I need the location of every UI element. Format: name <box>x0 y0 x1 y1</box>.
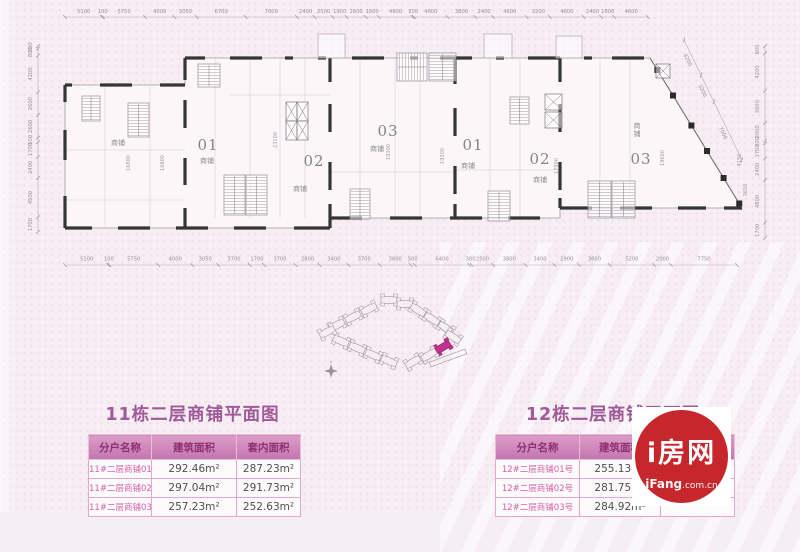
ifang-logo-domain: iFang.com.cn <box>635 477 728 491</box>
shop-label: 商铺 <box>461 161 475 170</box>
elevator-icon <box>286 102 297 121</box>
dimension-label: 1700 <box>28 143 34 156</box>
dimension-label: 2600 <box>350 9 363 15</box>
stairs-icon <box>397 53 427 81</box>
stairs-icon <box>429 53 456 81</box>
dimension-label: 3400 <box>533 257 546 263</box>
elevator-icon <box>297 102 308 121</box>
dimension-label: 3700 <box>227 257 240 263</box>
area-value-cell: 252.63m² <box>237 498 301 517</box>
dimension-label: 7000 <box>265 9 278 15</box>
page-title: 11栋二层商铺平面图 <box>88 401 297 426</box>
ifang-logo-text: i房网 <box>635 431 728 470</box>
site-building <box>347 339 367 357</box>
unit-number-label: 01 <box>462 136 483 154</box>
dimension-label: 2000 <box>656 257 669 263</box>
stairs-icon <box>128 103 149 137</box>
stairs-icon <box>488 191 510 221</box>
dimension-label: 5200 <box>625 257 638 263</box>
dimension-label: 3700 <box>273 257 286 263</box>
dimension-label: 4600 <box>625 9 638 15</box>
area-value-cell: 287.23m² <box>237 460 301 479</box>
unit-number-label: 01 <box>197 136 218 154</box>
area-value-cell: 297.04m² <box>152 479 237 498</box>
dimension-label: 300 <box>466 257 476 263</box>
dimension-label: 2400 <box>478 9 491 15</box>
dimension-label: 4600 <box>424 9 437 15</box>
dimension-label: 200 <box>408 9 418 15</box>
shop-label: 铺 <box>634 129 641 138</box>
dimension-label: 1800 <box>601 9 614 15</box>
dimension-label: 6400 <box>435 257 448 263</box>
interior-dimension-label: 17900 <box>554 158 560 174</box>
left-dimension-line: 3008004200260026005001700240045001700 <box>28 42 40 233</box>
unit-name-cell: 11#二层商铺03号 <box>89 498 152 517</box>
area-table-building-11: 分户名称建筑面积套内面积11#二层商铺01号292.46m²287.23m²11… <box>88 434 301 517</box>
dimension-label: 4800 <box>755 195 761 208</box>
dimension-label: 4500 <box>28 191 34 204</box>
page: 5100100575040003050670070002400250019002… <box>0 0 800 512</box>
dimension-label: 5750 <box>127 257 140 263</box>
stairs-icon <box>612 181 635 218</box>
dimension-label: 4000 <box>169 257 182 263</box>
compass-icon <box>324 361 338 378</box>
dimension-label: 1700 <box>250 257 263 263</box>
roof-outline <box>556 36 582 58</box>
dimension-label: 2400 <box>28 161 34 174</box>
right-dimension-line: 8004200360020003001700240048001700 <box>755 44 767 240</box>
dimension-label: 3600 <box>755 100 761 113</box>
unit-name-cell: 12#二层商铺02号 <box>496 479 580 498</box>
dimension-label: 2400 <box>755 163 761 176</box>
table-row: 11#二层商铺03号257.23m²252.63m² <box>89 498 301 517</box>
dimension-label: 5100 <box>77 9 90 15</box>
interior-dimension-label: 19300 <box>386 144 392 160</box>
unit-name-cell: 12#二层商铺03号 <box>496 498 580 517</box>
table-header-cell: 套内面积 <box>237 435 301 460</box>
dimension-label: 4200 <box>755 65 761 78</box>
stairs-icon <box>350 189 370 219</box>
interior-dimension-label: 16800 <box>126 155 132 171</box>
table-header-cell: 分户名称 <box>89 435 152 460</box>
dimension-label: 3800 <box>503 257 516 263</box>
dimension-label: 3400 <box>327 257 340 263</box>
dimension-label: 3600 <box>588 257 601 263</box>
shop-label: 商铺 <box>293 184 307 193</box>
dimension-label: 4600 <box>389 9 402 15</box>
elevator-icon <box>286 121 297 140</box>
elevator-icon <box>656 64 670 78</box>
dimension-label: 2500 <box>476 257 489 263</box>
bottom-dimension-line: 5100100575040003050370017003700280034003… <box>63 257 739 267</box>
elevator-icon <box>545 94 562 110</box>
table-row: 11#二层商铺02号297.04m²291.73m² <box>89 479 301 498</box>
interior-dimension-label: 4150 <box>737 154 743 167</box>
dimension-label: 5100 <box>80 257 93 263</box>
area-value-cell: 291.73m² <box>237 479 301 498</box>
dimension-label: 4200 <box>28 67 34 80</box>
dimension-label: 4600 <box>503 9 516 15</box>
interior-dimension-label: 23100 <box>273 132 279 148</box>
stairs-icon <box>82 96 100 121</box>
roof-outline <box>484 34 512 58</box>
siteplan-thumbnail <box>305 285 475 395</box>
dimension-label: 2800 <box>301 257 314 263</box>
table-row: 11#二层商铺01号292.46m²287.23m² <box>89 460 301 479</box>
stairs-icon <box>510 97 529 124</box>
dimension-label: 2500 <box>317 9 330 15</box>
dimension-label: 100 <box>98 9 108 15</box>
unit-number-label: 02 <box>529 150 550 168</box>
ifang-logo-watermark: i房网 iFang.com.cn <box>632 407 731 506</box>
dimension-label: 500 <box>408 257 418 263</box>
unit-name-cell: 12#二层商铺01号 <box>496 460 580 479</box>
interior-dimension-label: 16800 <box>160 155 166 171</box>
interior-dimension-label: 3650 <box>743 184 749 197</box>
unit-number-label: 02 <box>303 152 324 170</box>
dimension-label: 100 <box>104 257 114 263</box>
area-value-cell: 292.46m² <box>152 460 237 479</box>
dimension-label: 4000 <box>153 9 166 15</box>
dimension-label: 2400 <box>299 9 312 15</box>
unit-number-label: 03 <box>377 122 398 140</box>
dimension-label: 1800 <box>366 9 379 15</box>
elevator-icon <box>297 121 308 140</box>
shop-label: 商铺 <box>533 175 547 184</box>
dimension-label: 2600 <box>28 97 34 110</box>
unit-name-cell: 11#二层商铺01号 <box>89 460 152 479</box>
dimension-label: 5750 <box>117 9 130 15</box>
interior-dimension-label: 19600 <box>660 150 666 166</box>
site-building <box>359 300 380 318</box>
interior-dimension-label: 19300 <box>440 148 446 164</box>
dimension-label: 1700 <box>755 224 761 237</box>
shop-label: 商铺 <box>111 138 125 147</box>
dimension-label: 800 <box>755 45 761 55</box>
shop-label: 商 <box>634 121 641 130</box>
dimension-label: 4600 <box>560 9 573 15</box>
dimension-label: 1700 <box>755 144 761 157</box>
unit-name-cell: 11#二层商铺02号 <box>89 479 152 498</box>
shop-label: 商铺 <box>370 144 384 153</box>
dimension-label: 2900 <box>560 257 573 263</box>
stairs-icon <box>588 181 611 218</box>
ifang-logo-circle: i房网 iFang.com.cn <box>635 410 728 503</box>
dimension-label: 3050 <box>199 257 212 263</box>
site-building <box>381 294 398 306</box>
building-11-section: 11栋二层商铺平面图 分户名称建筑面积套内面积11#二层商铺01号292.46m… <box>88 401 297 517</box>
table-header-cell: 建筑面积 <box>152 435 237 460</box>
stairs-icon <box>246 175 267 215</box>
table-header-cell: 分户名称 <box>496 435 580 460</box>
dimension-label: 6700 <box>215 9 228 15</box>
floorplan-drawing: 5100100575040003050670070002400250019002… <box>0 0 800 285</box>
unit-number-label: 03 <box>630 150 651 168</box>
area-value-cell: 257.23m² <box>152 498 237 517</box>
shop-label: 商铺 <box>200 156 214 165</box>
dimension-label: 1900 <box>333 9 346 15</box>
dimension-label: 3600 <box>389 257 402 263</box>
dimension-label: 3050 <box>179 9 192 15</box>
elevator-icon <box>545 112 562 128</box>
top-dimension-line: 5100100575040003050670070002400250019002… <box>63 9 650 19</box>
stairs-icon <box>224 175 245 215</box>
roof-outline <box>318 34 345 58</box>
stairs-icon <box>198 64 220 87</box>
dimension-label: 2600 <box>28 120 34 133</box>
dimension-label: 3700 <box>358 257 371 263</box>
dimension-label: 2400 <box>586 9 599 15</box>
dimension-label: 3800 <box>455 9 468 15</box>
dimension-label: 7750 <box>697 257 710 263</box>
dimension-label: 800 <box>28 47 34 57</box>
dimension-label: 2000 <box>755 125 761 138</box>
site-building <box>343 308 364 326</box>
dimension-label: 3200 <box>532 9 545 15</box>
dimension-label: 1700 <box>28 218 34 231</box>
